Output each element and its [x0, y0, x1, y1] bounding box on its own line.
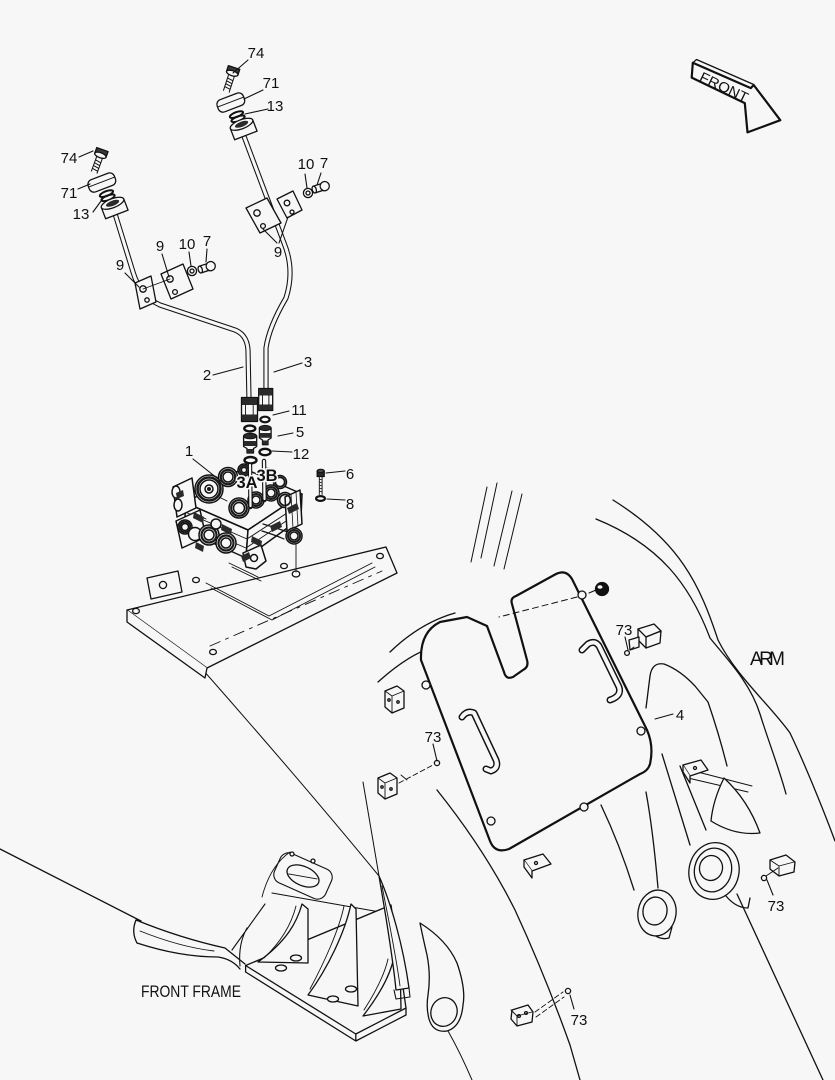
svg-text:71: 71	[263, 75, 280, 92]
svg-text:5: 5	[296, 424, 304, 441]
svg-text:FRONT FRAME: FRONT FRAME	[141, 982, 241, 1001]
svg-text:11: 11	[291, 402, 307, 419]
svg-text:3B: 3B	[256, 467, 277, 485]
svg-text:7: 7	[203, 233, 211, 250]
svg-text:10: 10	[179, 236, 196, 253]
svg-text:13: 13	[73, 206, 90, 223]
svg-text:9: 9	[156, 238, 164, 255]
svg-text:73: 73	[616, 622, 633, 639]
svg-text:4: 4	[676, 707, 684, 724]
svg-text:3: 3	[304, 354, 312, 371]
svg-text:74: 74	[248, 45, 265, 62]
svg-text:9: 9	[274, 244, 282, 261]
svg-text:13: 13	[267, 98, 284, 115]
svg-text:74: 74	[61, 150, 78, 167]
svg-text:10: 10	[298, 156, 315, 173]
svg-text:1: 1	[185, 443, 193, 460]
svg-text:73: 73	[425, 729, 442, 746]
svg-text:ARM: ARM	[750, 649, 785, 670]
svg-text:3A: 3A	[236, 474, 257, 492]
svg-text:12: 12	[293, 446, 310, 463]
svg-text:8: 8	[346, 496, 354, 513]
svg-text:71: 71	[61, 185, 78, 202]
svg-text:73: 73	[571, 1012, 588, 1029]
svg-text:73: 73	[768, 898, 785, 915]
svg-text:7: 7	[320, 155, 328, 172]
svg-text:6: 6	[346, 466, 354, 483]
svg-text:2: 2	[203, 367, 211, 384]
svg-text:9: 9	[116, 257, 124, 274]
